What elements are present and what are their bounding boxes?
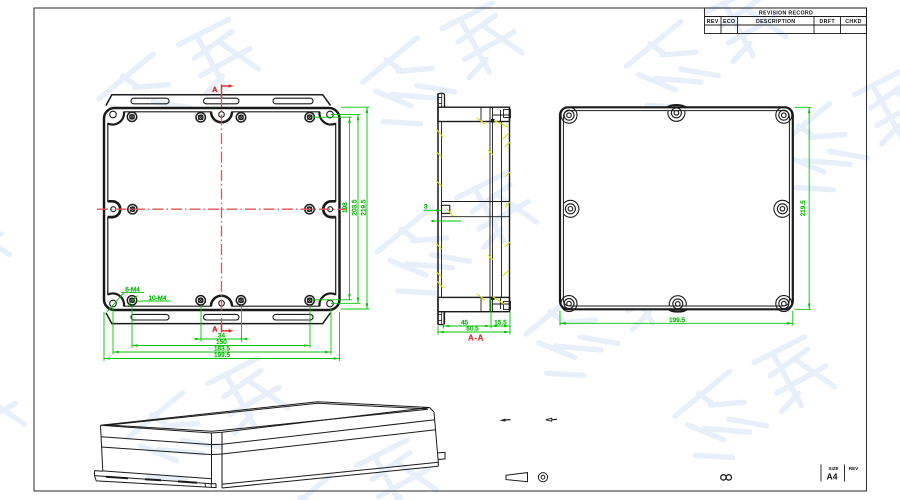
svg-text:60.5: 60.5 [466,326,479,333]
svg-text:REVISION RECORD: REVISION RECORD [759,10,813,16]
svg-text:SIZE: SIZE [828,466,838,471]
svg-text:A: A [212,85,218,94]
svg-text:REV: REV [849,466,859,471]
svg-text:203.5: 203.5 [352,199,359,215]
svg-text:CHKD: CHKD [845,19,862,25]
svg-text:A4: A4 [827,472,838,482]
svg-text:3: 3 [424,204,428,211]
svg-text:REV: REV [707,19,719,25]
svg-text:ECO: ECO [723,19,735,25]
svg-text:A-A: A-A [468,334,484,343]
svg-text:199.5: 199.5 [669,317,685,324]
svg-text:DRFT: DRFT [820,19,836,25]
svg-text:219.5: 219.5 [361,199,368,215]
svg-text:219.5: 219.5 [800,200,807,216]
svg-text:199.5: 199.5 [214,352,230,359]
svg-text:198: 198 [342,202,349,213]
svg-text:15.5: 15.5 [494,320,507,327]
svg-text:DESCRIPTION: DESCRIPTION [756,19,796,25]
